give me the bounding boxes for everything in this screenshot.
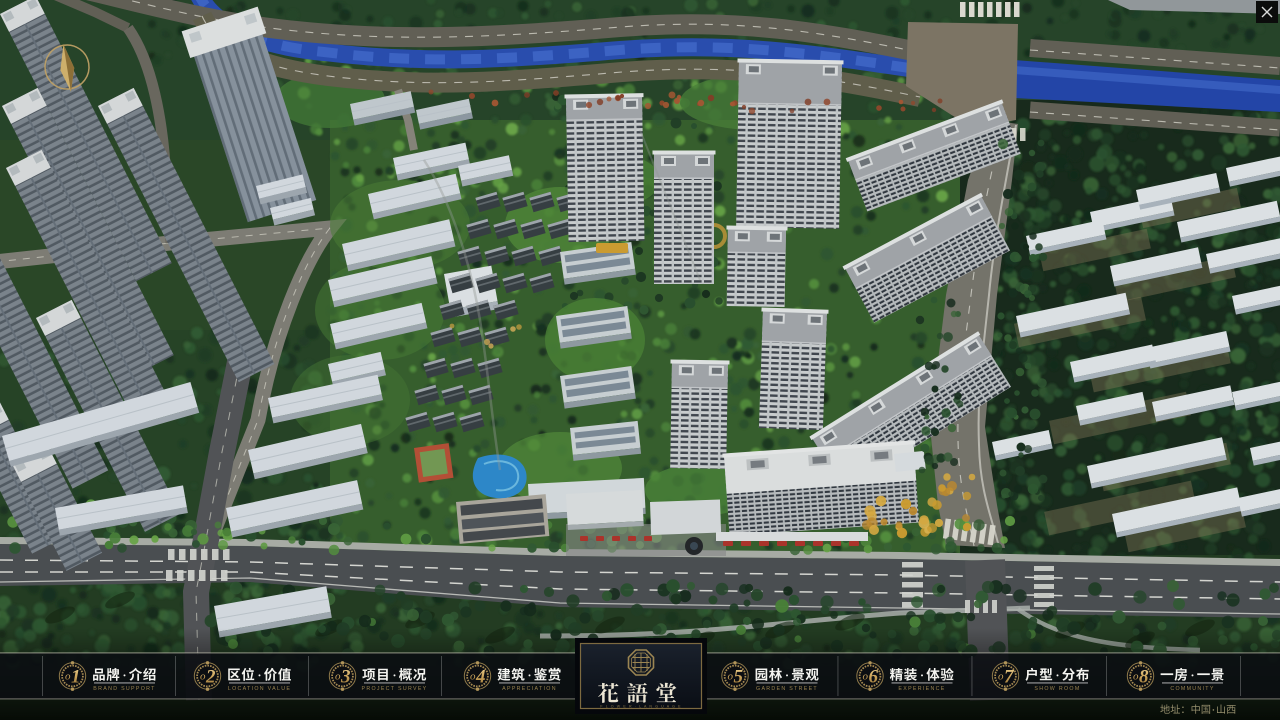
svg-text:EXPERIENCE: EXPERIENCE — [898, 686, 945, 692]
svg-text:4: 4 — [475, 667, 486, 688]
svg-text:5: 5 — [734, 667, 744, 688]
svg-text:SHOW ROOM: SHOW ROOM — [1034, 686, 1080, 692]
svg-text:GARDEN STREET: GARDEN STREET — [756, 686, 818, 692]
svg-text:3: 3 — [340, 667, 351, 688]
svg-text:8: 8 — [1139, 667, 1149, 688]
svg-text:APPRECIATION: APPRECIATION — [502, 686, 557, 692]
svg-text:LOCATION VALUE: LOCATION VALUE — [228, 686, 291, 692]
svg-text:7: 7 — [1004, 667, 1015, 688]
svg-text:2: 2 — [205, 667, 216, 688]
svg-text:PROJECT SURVEY: PROJECT SURVEY — [362, 686, 428, 692]
svg-text:BRAND SUPPORT: BRAND SUPPORT — [93, 686, 155, 692]
svg-text:COMMUNITY: COMMUNITY — [1170, 686, 1214, 692]
svg-text:6: 6 — [869, 667, 879, 688]
svg-text:1: 1 — [71, 667, 81, 688]
svg-text:F L O W E R · L A N G U A G E: F L O W E R · L A N G U A G E — [600, 705, 681, 709]
